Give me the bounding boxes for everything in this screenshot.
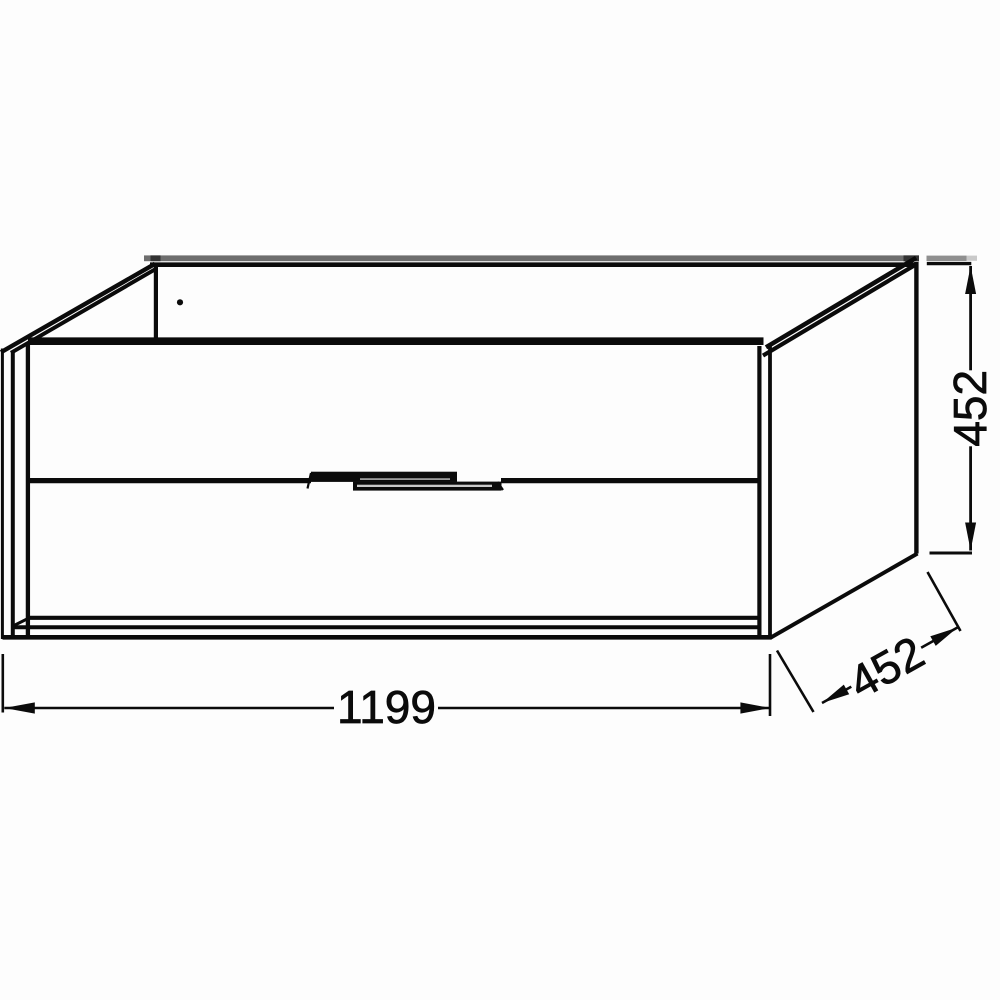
svg-text:452: 452 (944, 370, 996, 447)
svg-text:1199: 1199 (337, 681, 436, 733)
